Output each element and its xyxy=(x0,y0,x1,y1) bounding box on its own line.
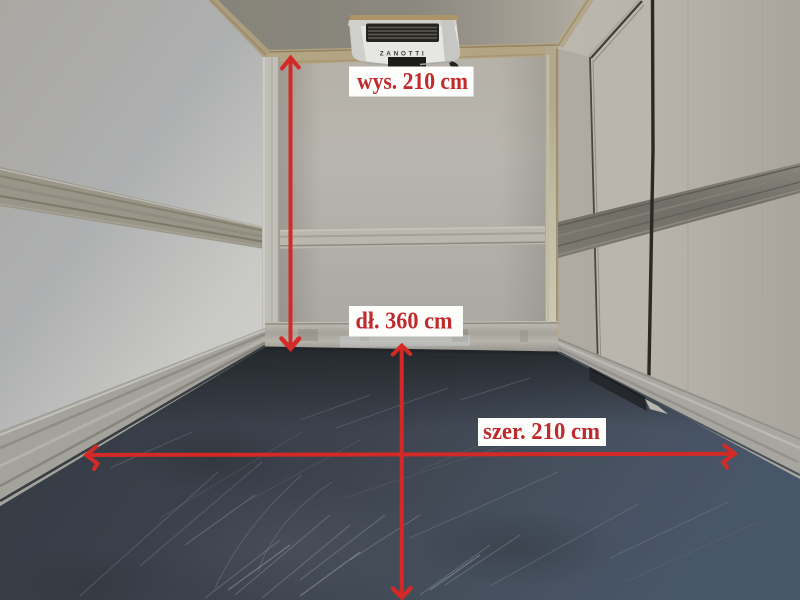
svg-text:szer. 210 cm: szer. 210 cm xyxy=(483,418,600,445)
svg-text:ZANOTTI: ZANOTTI xyxy=(380,51,427,58)
svg-text:dł. 360 cm: dł. 360 cm xyxy=(356,308,453,335)
svg-text:wys. 210 cm: wys. 210 cm xyxy=(357,68,468,95)
